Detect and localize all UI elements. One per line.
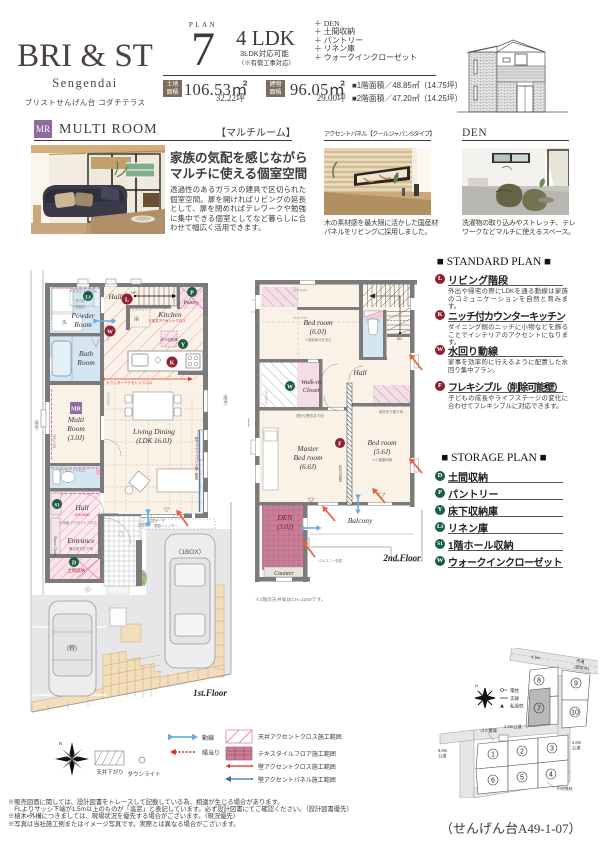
svg-text:CH=2000: CH=2000 — [264, 390, 268, 405]
svg-text:2: 2 — [520, 749, 524, 756]
svg-text:Multi: Multi — [67, 415, 84, 424]
svg-text:壁アクセントクロス施工範囲: 壁アクセントクロス施工範囲 — [258, 763, 336, 771]
svg-text:Shoes Closet: Shoes Closet — [53, 536, 58, 557]
svg-text:Y: Y — [181, 343, 186, 349]
svg-text:支線: 支線 — [510, 695, 519, 702]
svg-text:Hall: Hall — [74, 503, 88, 512]
svg-text:Li: Li — [85, 295, 91, 301]
svg-text:S1: S1 — [54, 504, 60, 509]
svg-text:公道: 公道 — [438, 752, 447, 759]
svg-text:8: 8 — [537, 678, 541, 685]
svg-text:Balcony: Balcony — [348, 516, 373, 525]
svg-text:カウンターアクセントクロス: カウンターアクセントクロス — [106, 380, 153, 385]
svg-text:Counter: Counter — [274, 571, 294, 577]
svg-text:アクセントクロス: アクセントクロス — [59, 468, 87, 473]
svg-text:Entrance: Entrance — [66, 536, 95, 545]
svg-text:K: K — [170, 361, 175, 367]
svg-text:UP: UP — [131, 290, 137, 295]
svg-text:間仕切壁天井下地: 間仕切壁天井下地 — [296, 413, 324, 418]
svg-text:テキスタイルフロア施工範囲: テキスタイルフロア施工範囲 — [258, 750, 336, 758]
svg-text:削除可能壁: 削除可能壁 — [338, 464, 342, 482]
svg-text:洗T用: 洗T用 — [75, 298, 85, 303]
svg-text:MR: MR — [71, 407, 82, 413]
svg-text:(3.0J): (3.0J) — [68, 434, 85, 442]
svg-text:Bed room: Bed room — [367, 438, 397, 447]
svg-text:W: W — [287, 385, 293, 391]
svg-text:※洗面 アクセントクロス: ※洗面 アクセントクロス — [59, 520, 98, 525]
svg-text:縦仕切り棚下地: 縦仕切り棚下地 — [379, 409, 403, 414]
svg-text:Powder: Powder — [70, 311, 94, 320]
svg-text:Hall: Hall — [107, 292, 121, 301]
svg-text:1st.Floor: 1st.Floor — [193, 688, 227, 698]
svg-text:天井アクセントクロス施工範囲: 天井アクセントクロス施工範囲 — [258, 733, 342, 741]
svg-text:〈隣地〉: 〈隣地〉 — [35, 417, 40, 433]
svg-text:Room: Room — [66, 424, 85, 433]
svg-text:アクセントクロス: アクセントクロス — [69, 289, 98, 294]
svg-text:Bed room: Bed room — [293, 453, 323, 462]
svg-text:4: 4 — [549, 772, 553, 779]
svg-text:5: 5 — [520, 775, 524, 782]
svg-text:(LDK 16.0J): (LDK 16.0J) — [136, 437, 172, 445]
svg-text:DEN: DEN — [277, 513, 294, 522]
svg-text:Walk-in: Walk-in — [301, 379, 321, 386]
svg-text:F: F — [338, 442, 342, 448]
svg-text:ダウンライト: ダウンライト — [127, 770, 160, 778]
svg-text:DN: DN — [397, 337, 402, 341]
svg-text:N: N — [59, 741, 62, 746]
svg-text:(6.6J): (6.6J) — [300, 463, 317, 471]
svg-text:〈1BOX〉: 〈1BOX〉 — [175, 548, 205, 556]
svg-text:Kitchen: Kitchen — [157, 310, 182, 319]
svg-text:W: W — [107, 330, 113, 336]
svg-text:壁アクセントパネル施工範囲: 壁アクセントパネル施工範囲 — [258, 776, 336, 784]
svg-text:動線: 動線 — [202, 734, 214, 742]
svg-text:バルコニー手摺: バルコニー手摺 — [318, 558, 342, 563]
svg-text:電動シャッター: 電動シャッター — [154, 523, 178, 528]
svg-text:土間収納: 土間収納 — [67, 567, 85, 574]
svg-text:天井下がり: 天井下がり — [96, 768, 124, 776]
svg-text:Room: Room — [76, 358, 95, 367]
svg-text:※収納部分を含む: ※収納部分を含む — [304, 337, 332, 342]
svg-text:冷: 冷 — [134, 316, 139, 323]
svg-text:N: N — [475, 683, 478, 688]
svg-text:壁アクセントクロス施工範囲: 壁アクセントクロス施工範囲 — [194, 436, 198, 481]
svg-text:1: 1 — [491, 752, 495, 759]
svg-text:(軽): (軽) — [67, 644, 77, 652]
svg-text:Master: Master — [296, 444, 318, 453]
svg-text:舞台框天井下地: 舞台框天井下地 — [69, 546, 93, 551]
svg-text:CH=2000: CH=2000 — [264, 515, 268, 530]
svg-text:CH=2400: CH=2400 — [75, 513, 90, 517]
svg-text:Closet: Closet — [303, 387, 320, 394]
svg-text:〈隣地〉: 〈隣地〉 — [224, 392, 229, 408]
svg-text:※天井アクセントクロス: ※天井アクセントクロス — [148, 318, 186, 323]
svg-text:CH=2400: CH=2400 — [106, 392, 110, 407]
svg-text:Hall: Hall — [352, 368, 366, 377]
svg-text:洗面口: 洗面口 — [75, 304, 86, 309]
svg-text:洗: 洗 — [62, 319, 67, 326]
svg-text:(6.0J): (6.0J) — [310, 328, 327, 336]
svg-text:Living Dining: Living Dining — [132, 427, 175, 436]
svg-text:3: 3 — [550, 746, 554, 753]
svg-text:私設杭: 私設杭 — [510, 703, 524, 710]
svg-text:P: P — [190, 291, 194, 297]
svg-text:不明残杭: 不明残杭 — [556, 785, 574, 792]
svg-text:2nd.Floor: 2nd.Floor — [382, 553, 421, 563]
svg-text:(3.0J): (3.0J) — [277, 523, 294, 531]
svg-text:10: 10 — [571, 710, 579, 717]
svg-text:陽当り: 陽当り — [202, 749, 220, 757]
svg-text:Pantry: Pantry — [183, 300, 200, 306]
svg-text:玄関ポーチ: 玄関ポーチ — [148, 518, 166, 523]
svg-text:L: L — [125, 298, 129, 304]
svg-text:床下収納庫: 床下収納庫 — [161, 337, 179, 342]
svg-text:〈隣地〉: 〈隣地〉 — [248, 415, 251, 431]
svg-text:Bath: Bath — [79, 349, 93, 358]
svg-text:CH=2000: CH=2000 — [293, 289, 307, 293]
svg-text:Room: Room — [73, 320, 92, 329]
svg-text:D: D — [72, 561, 77, 567]
svg-text:4.0m公道: 4.0m公道 — [504, 723, 522, 730]
svg-text:ゴミ置場: ゴミ置場 — [480, 727, 498, 734]
svg-text:電柱: 電柱 — [510, 687, 519, 694]
svg-text:6: 6 — [491, 778, 495, 785]
svg-text:Bed room: Bed room — [303, 318, 333, 327]
svg-text:9: 9 — [574, 681, 578, 688]
svg-text:※2階の天井高はCH=2200です。: ※2階の天井高はCH=2200です。 — [255, 596, 326, 603]
svg-text:※小屋裏収納: ※小屋裏収納 — [372, 457, 393, 462]
svg-text:公道: 公道 — [572, 744, 581, 751]
svg-text:7: 7 — [537, 706, 541, 713]
svg-text:(5.6J): (5.6J) — [374, 448, 391, 456]
